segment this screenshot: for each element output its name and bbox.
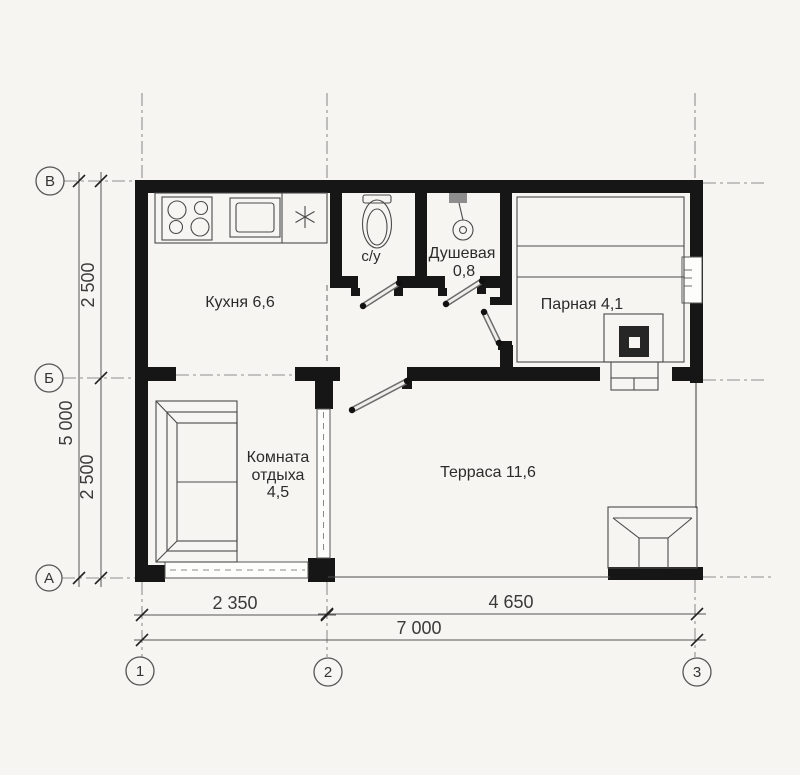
wall-a-corner-left <box>135 565 165 582</box>
burner-3 <box>170 221 183 234</box>
toilet-bowl-inner <box>367 209 387 245</box>
armchair-arm-right <box>668 518 692 538</box>
shower-label: Душевая <box>429 245 496 262</box>
axis-label-v: В <box>45 173 55 190</box>
dim-text-left-total: 5 000 <box>56 400 76 445</box>
dim-text-left-bottom: 2 500 <box>77 454 97 499</box>
rest-label-line2: отдыха <box>252 467 305 484</box>
axis-label-a: А <box>44 570 54 587</box>
sink-icon <box>230 198 280 237</box>
cooktop-outline <box>162 197 212 240</box>
wall-wc-bottom-left <box>332 276 358 288</box>
wall-wc-shower <box>415 193 427 288</box>
wall-top <box>135 180 703 193</box>
shower-area: 0,8 <box>453 263 475 280</box>
wall-kitchen-wc <box>330 193 342 288</box>
toilet-cistern <box>363 195 391 203</box>
jamb-wc-left <box>351 288 360 296</box>
steam-room-inner-outline <box>517 197 684 362</box>
floor-plan-page: Кухня 6,6 с/у Душевая 0,8 Парная 4,1 Ком… <box>0 0 800 775</box>
wall-steam-bottom-left <box>513 367 600 381</box>
burner-1 <box>168 201 186 219</box>
dim-text-bottom-total: 7 000 <box>396 618 441 638</box>
armchair-seat <box>639 538 668 568</box>
jamb-steam-top <box>490 297 501 305</box>
kitchen-label: Кухня 6,6 <box>205 294 275 311</box>
wall-shower-steam-upper <box>500 193 512 305</box>
wall-b-stub-mid <box>295 367 340 381</box>
jamb-shower-right <box>477 286 486 294</box>
jamb-wc-right <box>394 288 403 296</box>
refrigerator-icon <box>296 206 315 228</box>
armchair-arm-left <box>613 518 639 538</box>
doors <box>349 278 502 413</box>
wall-steam-bottom-right <box>672 367 703 381</box>
wall-shower-bottom-left <box>427 276 445 288</box>
shower-drain-outer <box>453 220 473 240</box>
rest-label-line1: Комната <box>247 449 310 466</box>
jamb-shower-left <box>438 288 447 296</box>
shower-bracket <box>449 193 467 203</box>
axis-label-1: 1 <box>136 663 144 680</box>
sauna-stove-icon <box>604 314 663 390</box>
dim-text-left-top: 2 500 <box>78 262 98 307</box>
toilet-icon <box>363 195 392 248</box>
axis-label-b: Б <box>44 370 54 387</box>
wall-partition-bottom-stub <box>308 558 335 582</box>
terrace-door <box>349 378 410 413</box>
steam-window-icon <box>682 257 702 303</box>
sink-inner <box>236 203 274 232</box>
wall-hall-terrace <box>407 367 513 381</box>
sofa-icon <box>156 401 237 562</box>
shower-head-icon <box>449 193 473 240</box>
wc-label: с/у <box>361 248 381 265</box>
floor-plan-drawing: Кухня 6,6 с/у Душевая 0,8 Парная 4,1 Ком… <box>0 0 800 775</box>
wall-partition-top-stub <box>315 381 333 409</box>
axis-label-2: 2 <box>324 664 332 681</box>
wall-terrace-bottom-bar <box>608 567 703 580</box>
shower-drain-inner <box>460 227 467 234</box>
dim-text-bottom-left: 2 350 <box>212 593 257 613</box>
stove-firebox <box>629 337 640 348</box>
axis-label-3: 3 <box>693 664 701 681</box>
armchair-icon <box>608 507 697 568</box>
shower-hose <box>459 203 463 220</box>
burner-4 <box>191 218 209 236</box>
steam-door <box>481 309 502 346</box>
kitchen-counter <box>155 193 327 243</box>
terrace-label: Терраса 11,6 <box>440 464 536 481</box>
wall-b-stub-left <box>135 367 176 381</box>
burner-2 <box>195 202 208 215</box>
cooktop-icon <box>162 197 212 240</box>
rest-label-area: 4,5 <box>267 484 289 501</box>
steam-label: Парная 4,1 <box>541 296 623 313</box>
dim-text-bottom-right: 4 650 <box>488 592 533 612</box>
steam-window-frame <box>682 257 702 303</box>
